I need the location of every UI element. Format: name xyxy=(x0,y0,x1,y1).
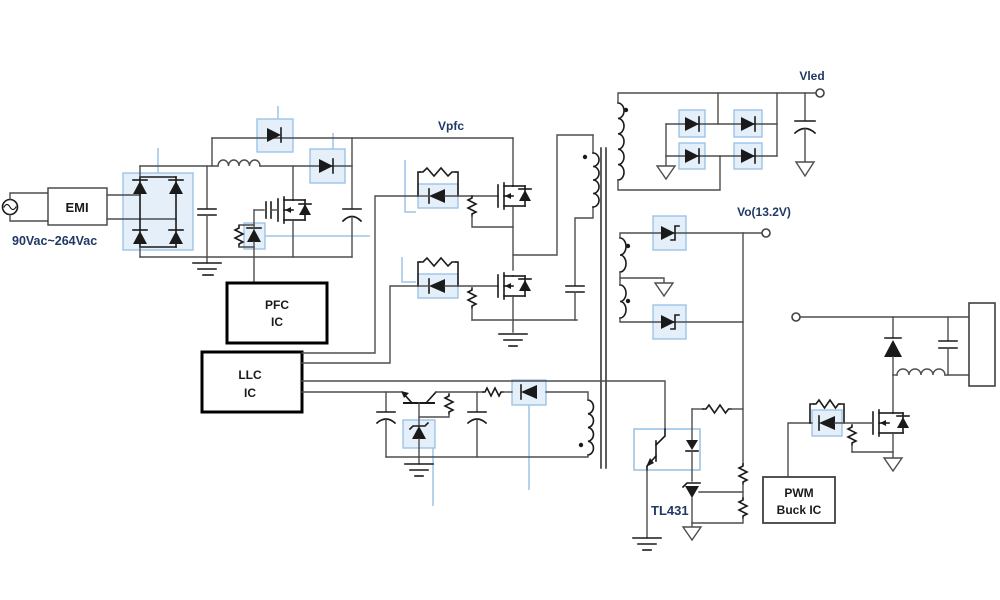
aux-base-resistor xyxy=(445,394,453,414)
vo-terminal xyxy=(762,229,770,237)
vled-terminal xyxy=(816,89,824,97)
aux-winding xyxy=(588,400,593,455)
opto-transistor xyxy=(646,429,665,538)
vo-secondary-upper xyxy=(620,238,626,272)
polarity-dot xyxy=(579,443,583,447)
buck-cap xyxy=(939,317,957,375)
ac-source xyxy=(3,193,49,221)
buck-diode xyxy=(884,317,902,375)
divider-resistor-lower xyxy=(739,498,747,518)
feedback-network: TL431 xyxy=(302,381,747,550)
vled-output: Vled xyxy=(618,69,825,190)
gate-parallel-resistor xyxy=(814,400,840,408)
pfc-mosfet xyxy=(278,166,311,257)
ground-arrow-icon xyxy=(796,162,814,176)
pfc-ic-label-2: IC xyxy=(271,315,283,329)
polarity-dot xyxy=(626,244,630,248)
ground-arrow-icon xyxy=(683,527,701,540)
polarity-dot xyxy=(626,299,630,303)
ground-arrow-icon xyxy=(657,166,675,179)
buck-inductor xyxy=(897,369,945,375)
pwm-buck-ic-label-2: Buck IC xyxy=(777,503,822,517)
primary-ground-icon xyxy=(193,257,221,275)
optocoupler-highlight xyxy=(634,429,700,470)
vo-label: Vo(13.2V) xyxy=(737,205,791,219)
body-diode-icon xyxy=(519,280,531,291)
divider-resistor-upper xyxy=(739,464,747,484)
emi-label: EMI xyxy=(65,200,88,215)
buck-stage: PWM Buck IC xyxy=(763,303,995,523)
aux-ground-icon xyxy=(405,457,433,476)
tl431-shunt xyxy=(683,483,743,523)
gate-parallel-resistor xyxy=(420,168,456,176)
gate-resistor xyxy=(235,226,243,246)
vo-secondary-lower xyxy=(620,285,626,318)
schematic-canvas: EMI 90Vac~264Vac xyxy=(0,0,1000,600)
llc-ic-label-1: LLC xyxy=(238,368,262,382)
power-supply-schematic: EMI 90Vac~264Vac xyxy=(0,0,1000,600)
vo-output: Vo(13.2V) xyxy=(620,205,791,464)
sine-icon xyxy=(4,205,16,210)
ground-arrow-icon xyxy=(884,458,902,471)
pfc-ic-label-1: PFC xyxy=(265,298,289,312)
boost-inductor xyxy=(218,160,260,166)
load-block xyxy=(969,303,995,386)
aux-cap-1 xyxy=(377,392,395,457)
lower-gate-leader xyxy=(402,257,416,282)
lower-mosfet xyxy=(498,273,531,332)
pwm-buck-ic-block: PWM Buck IC xyxy=(763,477,835,523)
pfc-ic-block: PFC IC xyxy=(227,283,327,343)
body-diode-icon xyxy=(299,204,311,215)
aux-series-resistor xyxy=(483,388,503,396)
body-diode-icon xyxy=(897,417,909,428)
upper-mosfet xyxy=(498,138,531,270)
vled-secondary-winding xyxy=(618,103,624,180)
half-bridge-ground-icon xyxy=(499,334,527,346)
gate-pulldown-resistor xyxy=(848,425,856,445)
gate-pulldown-resistor xyxy=(468,288,476,308)
gate-parallel-resistor xyxy=(420,258,456,266)
buck-input-terminal xyxy=(792,313,800,321)
tl431-label: TL431 xyxy=(651,503,689,518)
gate-pulldown-resistor xyxy=(468,196,476,216)
polarity-dot xyxy=(583,155,587,159)
polarity-dot xyxy=(624,108,628,112)
vpfc-label: Vpfc xyxy=(438,119,464,133)
transformer xyxy=(579,103,630,468)
ground-arrow-icon xyxy=(655,283,673,296)
opto-ground-icon xyxy=(633,538,661,550)
primary-winding xyxy=(593,153,599,207)
input-range-label: 90Vac~264Vac xyxy=(12,234,97,248)
llc-ic-block: LLC IC xyxy=(202,352,302,412)
opto-bias-resistor xyxy=(703,405,731,413)
llc-ic-label-2: IC xyxy=(244,386,256,400)
upper-gate-leader xyxy=(405,160,416,212)
vled-label: Vled xyxy=(799,69,824,83)
aux-cap-2 xyxy=(468,392,486,457)
pwm-buck-ic-label-1: PWM xyxy=(784,486,813,500)
bridge-rectifier-highlight xyxy=(123,173,193,250)
body-diode-icon xyxy=(519,190,531,201)
